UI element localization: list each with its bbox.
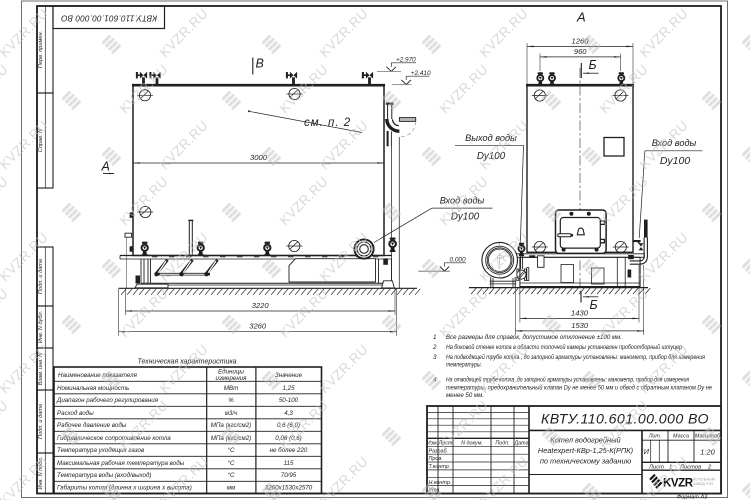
svg-text:см. п. 2: см. п. 2 xyxy=(304,117,351,129)
svg-text:3260: 3260 xyxy=(249,321,267,330)
svg-text:N докум.: N докум. xyxy=(461,440,483,446)
svg-text:°С: °С xyxy=(228,460,235,467)
svg-text:И: И xyxy=(644,447,650,456)
svg-text:Температура воды (вход/выход): Температура воды (вход/выход) xyxy=(57,472,151,479)
svg-text:Б: Б xyxy=(590,298,598,312)
svg-text:Максимальная рабочая температу: Максимальная рабочая температура воды xyxy=(57,460,185,467)
svg-text:Пров.: Пров. xyxy=(429,456,443,462)
svg-text:Heatexpert-КВр-1,25-К(РПК): Heatexpert-КВр-1,25-К(РПК) xyxy=(538,446,634,455)
svg-text:1,25: 1,25 xyxy=(282,385,295,392)
svg-text:1530: 1530 xyxy=(571,321,589,330)
svg-text:1:20: 1:20 xyxy=(700,448,715,457)
svg-text:А: А xyxy=(101,160,110,174)
svg-text:Лит.: Лит. xyxy=(648,434,662,440)
svg-text:2: 2 xyxy=(432,344,437,351)
svg-text:мм: мм xyxy=(227,485,236,492)
svg-text:Наименование показателя: Наименование показателя xyxy=(58,372,138,379)
svg-text:Инв. N дубл.: Инв. N дубл. xyxy=(38,311,44,343)
svg-text:КВТУ.110.601.00.000 ВО: КВТУ.110.601.00.000 ВО xyxy=(60,13,157,22)
svg-text:Н.контр.: Н.контр. xyxy=(429,480,452,486)
svg-text:Номинальная мощность: Номинальная мощность xyxy=(57,385,129,392)
svg-text:измерения: измерения xyxy=(216,375,248,382)
svg-text:Б: Б xyxy=(589,58,597,72)
svg-text:В: В xyxy=(256,57,264,71)
svg-text:КОТЕЛЬНЫЙ: КОТЕЛЬНЫЙ xyxy=(693,478,715,482)
svg-text:Все размеры для справок, допус: Все размеры для справок, допустимое откл… xyxy=(446,333,622,341)
svg-text:°С: °С xyxy=(228,447,235,454)
svg-text:1: 1 xyxy=(433,334,437,341)
svg-text:менее 50 мм.: менее 50 мм. xyxy=(446,392,484,399)
svg-text:Подп. и дата: Подп. и дата xyxy=(38,259,44,294)
svg-text:960: 960 xyxy=(574,47,587,56)
svg-text:м3/ч: м3/ч xyxy=(225,410,238,417)
svg-text:3: 3 xyxy=(433,354,437,361)
svg-text:Dу100: Dу100 xyxy=(660,155,691,167)
svg-text:Подп. и дата: Подп. и дата xyxy=(38,404,44,439)
svg-text:4,3: 4,3 xyxy=(284,410,293,417)
svg-text:Расход воды: Расход воды xyxy=(57,410,94,417)
svg-text:Диапазон рабочего регулировани: Диапазон рабочего регулирования xyxy=(56,397,159,404)
svg-text:Масса: Масса xyxy=(673,434,689,440)
svg-text:А: А xyxy=(576,10,586,25)
svg-text:Лист: Лист xyxy=(648,465,664,471)
svg-text:ЗАВОД РЭП: ЗАВОД РЭП xyxy=(693,482,714,486)
svg-text:Т.контр.: Т.контр. xyxy=(429,464,451,470)
svg-text:50-100: 50-100 xyxy=(279,397,299,404)
svg-text:МВт: МВт xyxy=(224,385,238,392)
svg-text:Подп.: Подп. xyxy=(495,440,509,446)
svg-text:Температура уходящих газов: Температура уходящих газов xyxy=(57,447,145,454)
svg-text:Значение: Значение xyxy=(275,372,303,379)
svg-text:На боковой стенке котла в обла: На боковой стенке котла в области топочн… xyxy=(446,343,682,351)
svg-text:Формат А3: Формат А3 xyxy=(677,495,708,500)
svg-text:Рабочее давление воды: Рабочее давление воды xyxy=(57,422,127,429)
svg-text:3220: 3220 xyxy=(252,301,270,310)
svg-text:Перв. примен.: Перв. примен. xyxy=(38,31,44,68)
svg-text:температуры.: температуры. xyxy=(446,362,482,369)
svg-text:°С: °С xyxy=(228,472,235,479)
svg-text:0.000: 0.000 xyxy=(450,256,466,263)
svg-text:70/95: 70/95 xyxy=(281,472,297,479)
svg-text:%: % xyxy=(228,397,234,404)
svg-text:1430: 1430 xyxy=(571,308,589,317)
svg-text:115: 115 xyxy=(284,460,294,467)
svg-text:Дата: Дата xyxy=(513,440,528,446)
svg-text:по техническому заданию: по техническому заданию xyxy=(540,457,632,466)
